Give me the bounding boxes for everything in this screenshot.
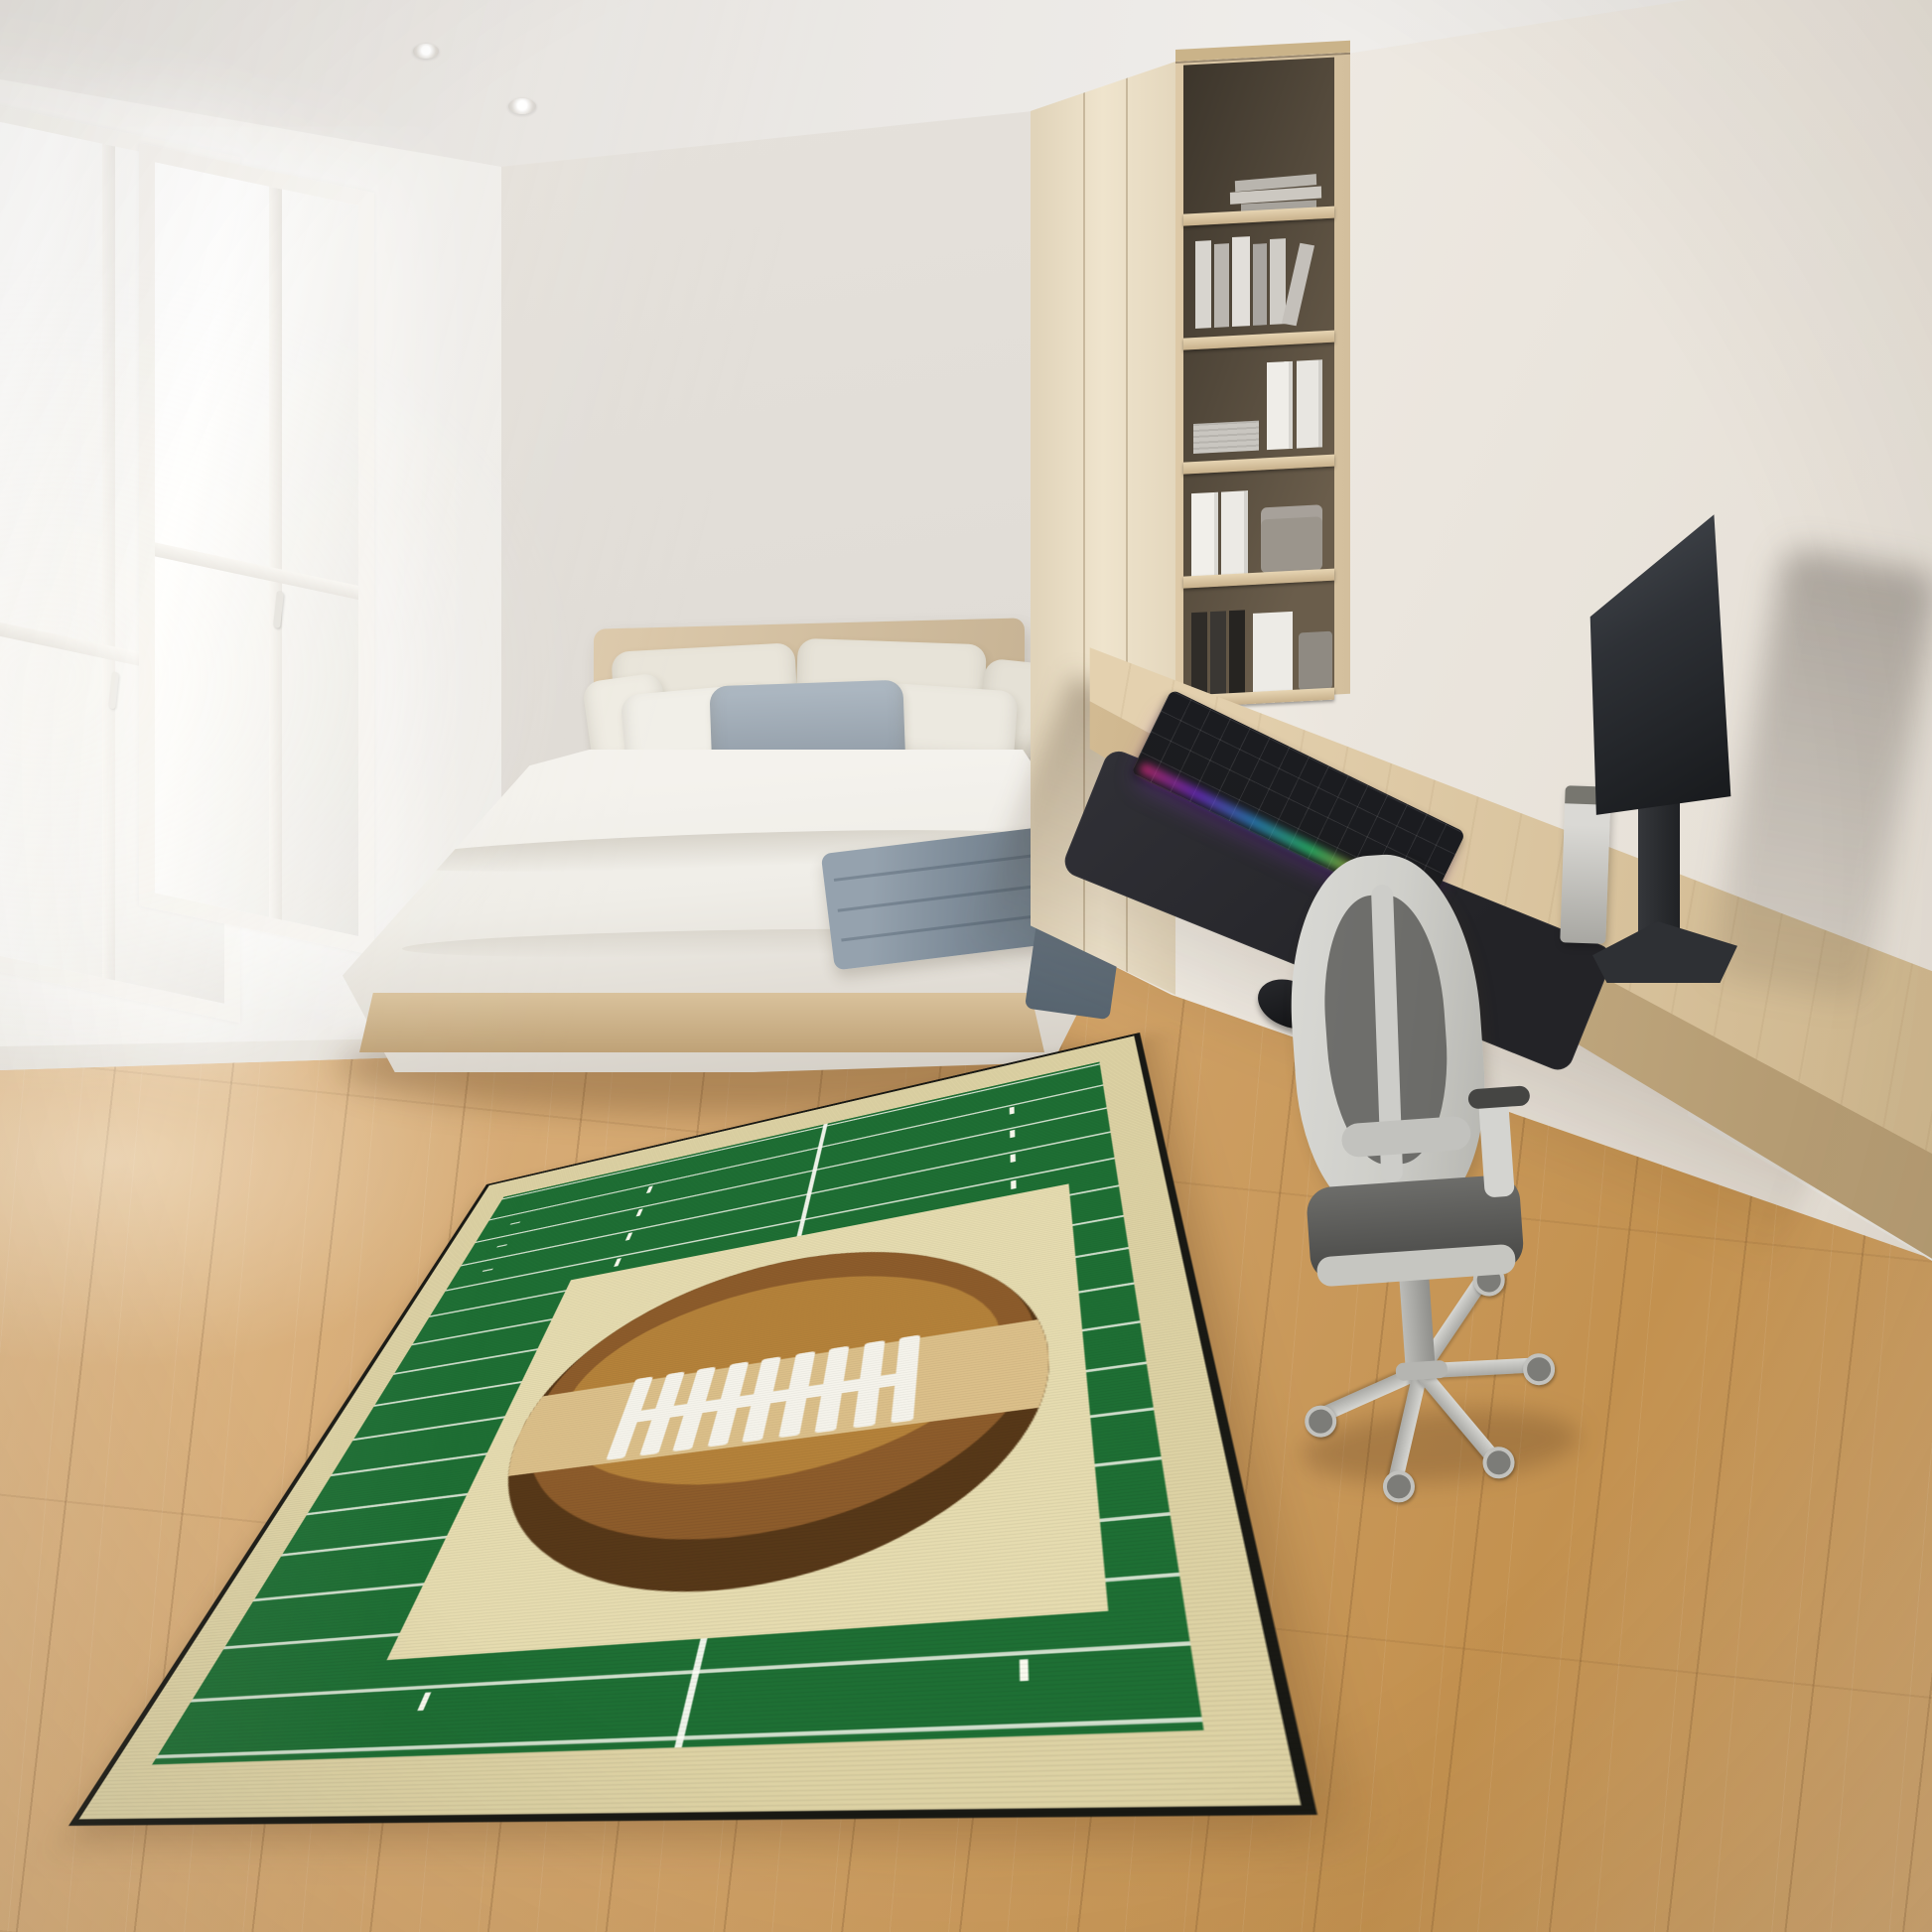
book [1214, 243, 1229, 328]
window-mullion [102, 144, 115, 981]
binder [1297, 359, 1322, 448]
file-holder [1253, 612, 1293, 693]
binder [1191, 492, 1218, 578]
bedroom-scene [0, 0, 1932, 1932]
binder [1221, 490, 1248, 576]
window-mullion [269, 187, 282, 920]
binder [1267, 361, 1293, 450]
ceiling-light [413, 44, 439, 59]
chair-column [1399, 1270, 1436, 1376]
document-folder [1229, 610, 1245, 695]
office-chair [1230, 836, 1583, 1511]
book [1232, 236, 1250, 327]
window-left [139, 143, 374, 955]
storage-box-small [1299, 631, 1332, 691]
chair-armrest-pad [1467, 1085, 1530, 1109]
chair-base-hub [1395, 1360, 1448, 1382]
document-folder [1191, 612, 1207, 697]
book [1195, 240, 1211, 329]
shelf-board [1183, 455, 1334, 475]
shelf-board [1183, 207, 1334, 226]
chair-armrest [1478, 1099, 1515, 1198]
paper-stack [1193, 421, 1259, 454]
shelf-board [1183, 331, 1334, 350]
book-leaning [1282, 243, 1314, 326]
book [1253, 243, 1267, 326]
storage-box [1261, 504, 1322, 573]
bookshelf-interior [1183, 58, 1334, 703]
ceiling-light [508, 98, 536, 114]
document-folder [1210, 611, 1226, 696]
chair-caster [1522, 1352, 1556, 1386]
bookshelf [1175, 41, 1350, 703]
